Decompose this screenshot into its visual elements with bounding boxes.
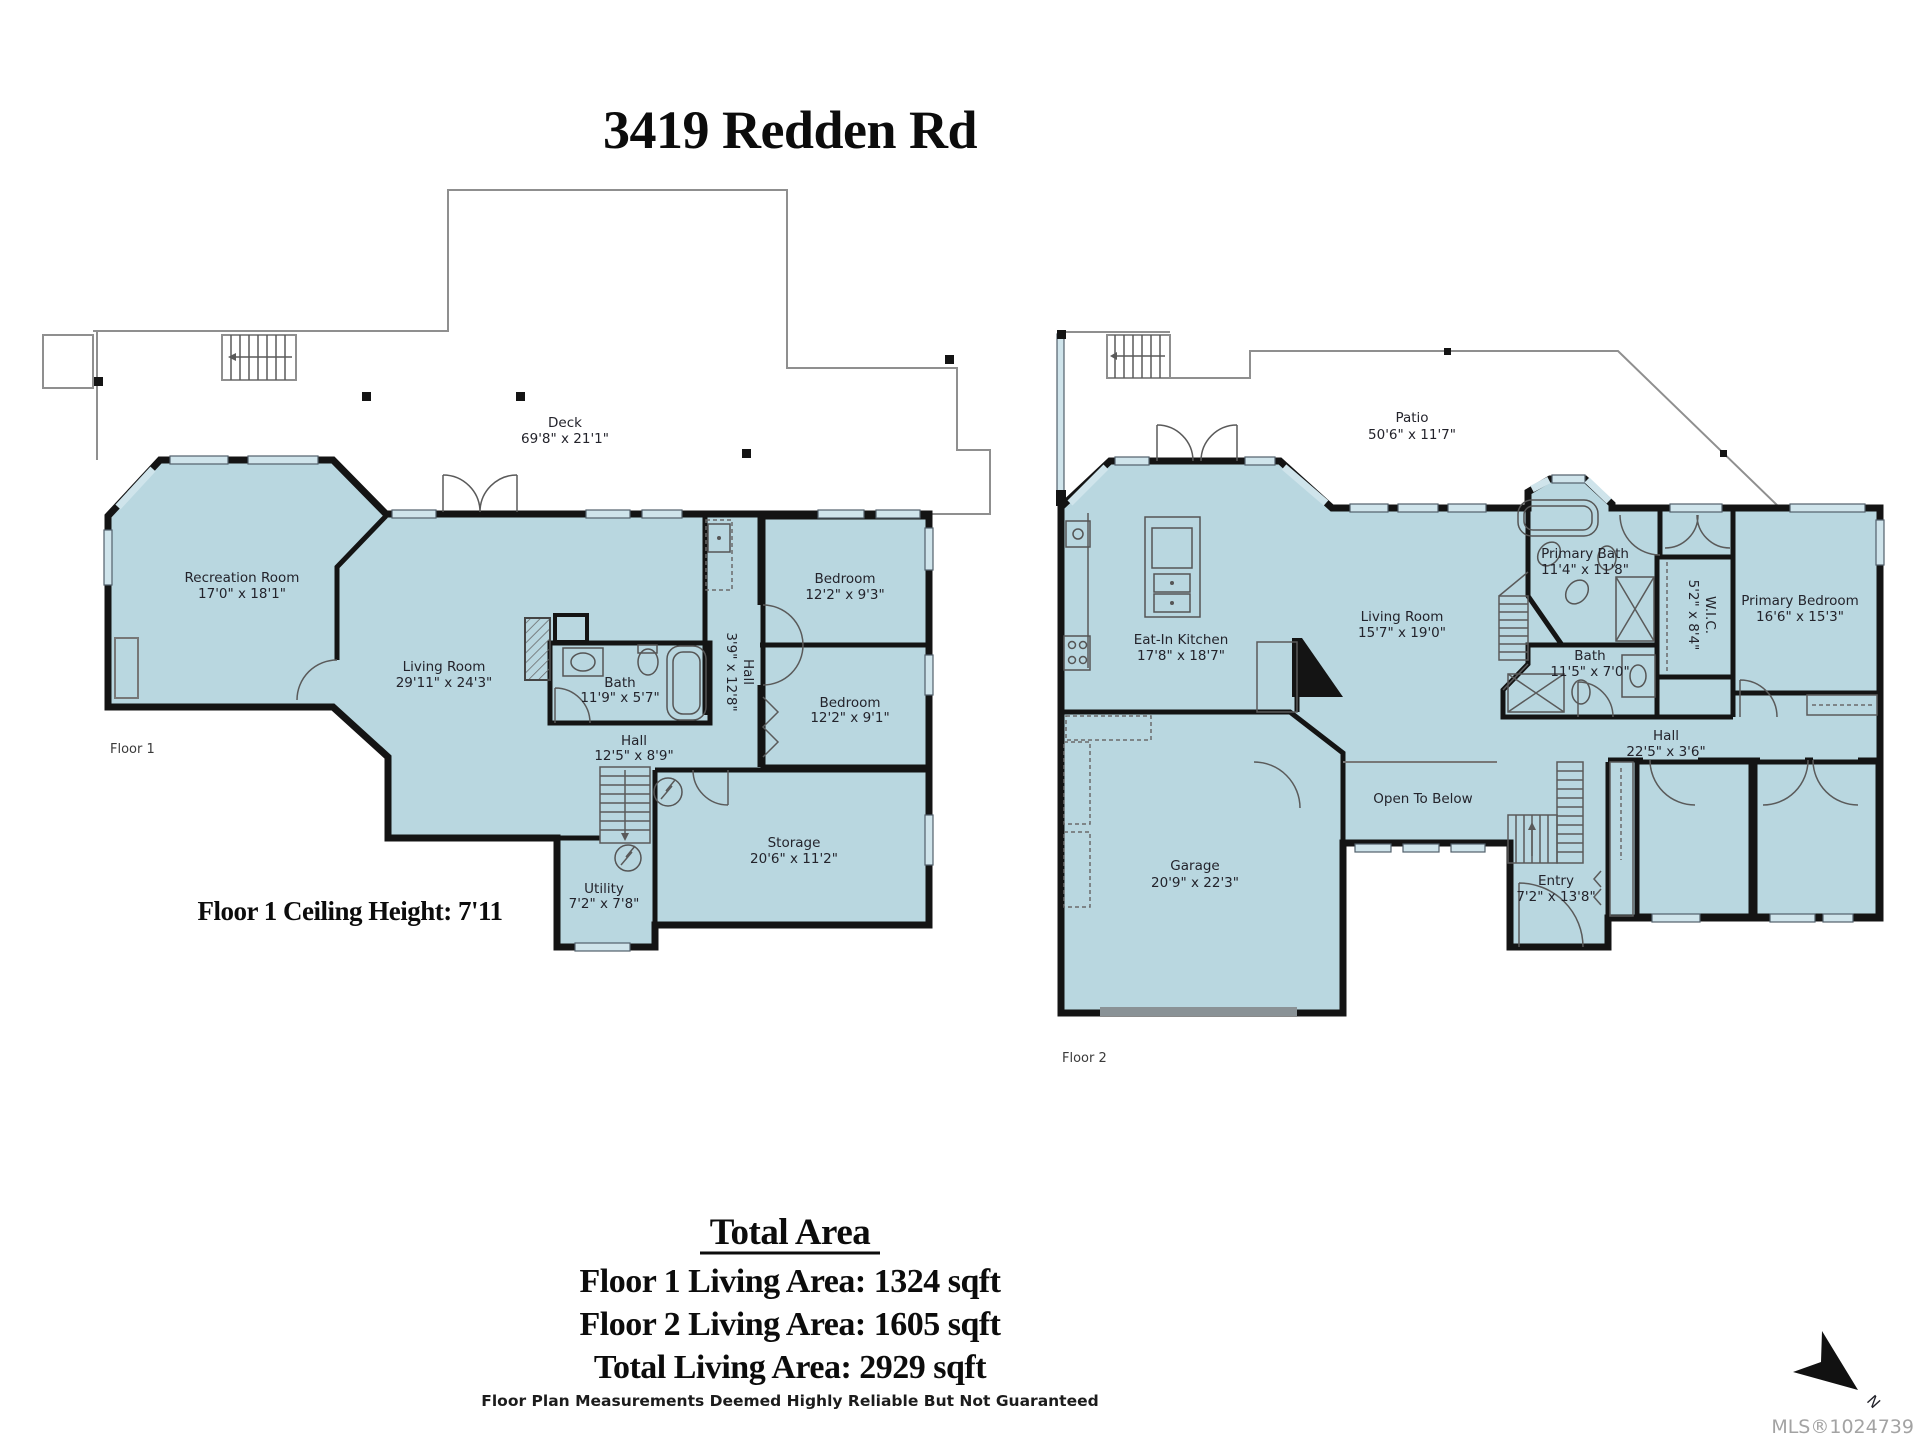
disclaimer-text: Floor Plan Measurements Deemed Highly Re…: [481, 1392, 1098, 1410]
utility-dims: 7'2" x 7'8": [569, 896, 640, 912]
total-area-text: Total Living Area: 2929 sqft: [594, 1349, 987, 1386]
recreation-room-label: Recreation Room: [185, 570, 300, 586]
patio-railing: [1057, 334, 1064, 504]
wic-dims: 5'2" x 8'4": [1685, 580, 1701, 651]
patio-label: Patio: [1395, 410, 1428, 426]
storage-dims: 20'6" x 11'2": [750, 851, 838, 867]
hall2-dims: 22'5" x 3'6": [1626, 744, 1705, 760]
deck-label: Deck: [548, 415, 582, 431]
storage-label: Storage: [768, 835, 821, 851]
bedroom-bottom-label: Bedroom: [819, 695, 880, 711]
entry-dims: 7'2" x 13'8": [1516, 889, 1595, 905]
patio-dims: 50'6" x 11'7": [1368, 427, 1456, 443]
bedroom-top-label: Bedroom: [814, 571, 875, 587]
floor2-label: Floor 2: [1062, 1051, 1107, 1066]
total-area-heading: Total Area: [710, 1212, 871, 1253]
kitchen-label: Eat-In Kitchen: [1134, 632, 1229, 648]
open-to-below-label: Open To Below: [1373, 791, 1472, 807]
chimney-hatch: [525, 618, 550, 680]
primary-bedroom-dims: 16'6" x 15'3": [1756, 609, 1844, 625]
floor1-plan: Deck 69'8" x 21'1" Recreation Room 17'0"…: [43, 190, 990, 951]
bath2-label: Bath: [1574, 648, 1605, 664]
hall2-label: Hall: [1653, 728, 1679, 744]
hall-vertical-dims: 3'9" x 12'8": [723, 632, 739, 711]
living-room2-dims: 15'7" x 19'0": [1358, 625, 1446, 641]
floor1-footprint: [108, 460, 929, 947]
primary-bath-dims: 11'4" x 11'8": [1541, 562, 1629, 578]
kitchen-dims: 17'8" x 18'7": [1137, 648, 1225, 664]
summary-block: Total Area Floor 1 Living Area: 1324 sqf…: [481, 1212, 1098, 1410]
floor-plan-image: Deck 69'8" x 21'1" Recreation Room 17'0"…: [0, 0, 1920, 1440]
bath1-label: Bath: [604, 675, 635, 691]
floor-plan-page: Deck 69'8" x 21'1" Recreation Room 17'0"…: [0, 0, 1920, 1440]
utility-label: Utility: [584, 881, 624, 897]
floor2-area-text: Floor 2 Living Area: 1605 sqft: [579, 1306, 1001, 1343]
garage-door: [1100, 1007, 1297, 1016]
north-arrow: N: [1793, 1331, 1884, 1412]
floor2-plan: Patio 50'6" x 11'7" Eat-In Kitchen 17'8"…: [1056, 330, 1884, 1066]
bedroom-top-dims: 12'2" x 9'3": [805, 587, 884, 603]
garage-dims: 20'9" x 22'3": [1151, 875, 1239, 891]
primary-bath-label: Primary Bath: [1541, 546, 1629, 562]
page-title: 3419 Redden Rd: [603, 100, 978, 160]
hall1-dims: 12'5" x 8'9": [594, 748, 673, 764]
living-room1-dims: 29'11" x 24'3": [396, 675, 493, 691]
wic-label: W.I.C.: [1702, 596, 1718, 634]
floor1-ceiling-note: Floor 1 Ceiling Height: 7'11: [198, 896, 503, 926]
hall1-label: Hall: [621, 733, 647, 749]
garage-label: Garage: [1170, 858, 1219, 874]
recreation-room-dims: 17'0" x 18'1": [198, 586, 286, 602]
open-to-below-railing: [1355, 844, 1485, 852]
primary-bedroom-label: Primary Bedroom: [1741, 593, 1859, 609]
entry-label: Entry: [1538, 873, 1574, 889]
deck-dims: 69'8" x 21'1": [521, 431, 609, 447]
floor1-area-text: Floor 1 Living Area: 1324 sqft: [579, 1263, 1001, 1300]
hall-vertical-label: Hall: [740, 659, 756, 685]
bath1-dims: 11'9" x 5'7": [580, 690, 659, 706]
bath2-dims: 11'5" x 7'0": [1550, 664, 1629, 680]
floor2-footprint: [1061, 461, 1880, 1013]
floor1-label: Floor 1: [110, 742, 155, 757]
living-room1-label: Living Room: [403, 659, 486, 675]
living-room2-label: Living Room: [1361, 609, 1444, 625]
bedroom-bottom-dims: 12'2" x 9'1": [810, 710, 889, 726]
mls-number: MLS®1024739: [1771, 1416, 1914, 1438]
north-label: N: [1863, 1392, 1884, 1412]
